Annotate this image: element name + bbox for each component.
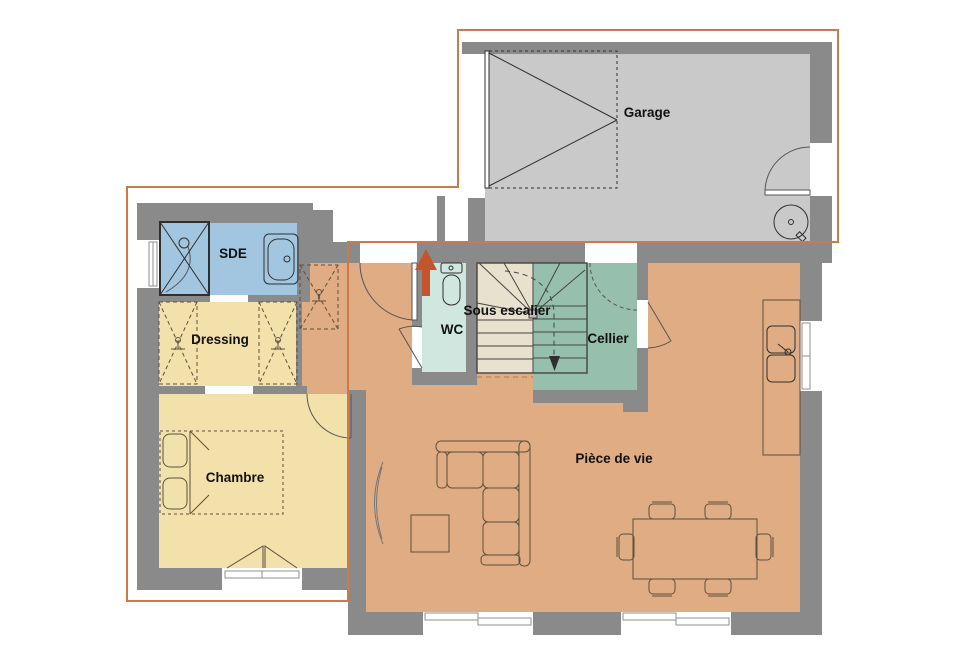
garage-cellier-opening: [585, 241, 637, 263]
floor-plan-canvas: Garage SDE Dressing Chambre WC Sous esca…: [0, 0, 960, 664]
living-window1-pane-a: [425, 613, 478, 620]
wall-garage-left-column: [468, 198, 485, 241]
garage-door-opening: [810, 143, 832, 196]
wall-wc-stair-stub: [466, 263, 477, 373]
wall-north-night-block: [137, 203, 313, 223]
living-window2-pane-b: [676, 618, 729, 625]
wall-entrance-left: [330, 242, 360, 263]
cellier-living-opening: [637, 300, 648, 348]
wall-cellier-south-notch: [623, 390, 648, 412]
garage-door-leaf: [765, 190, 810, 195]
hall-floor: [300, 263, 412, 394]
sde-dressing-opening: [210, 295, 248, 302]
sous-escalier-floor: [477, 263, 533, 373]
label-wc: WC: [441, 322, 464, 337]
cellier-floor: [533, 263, 637, 390]
wall-column-sde-east: [308, 210, 333, 263]
wall-sde-south-left: [159, 295, 210, 302]
label-sous-escalier: Sous escalier: [463, 303, 551, 318]
label-piece-de-vie: Pièce de vie: [575, 451, 653, 466]
wall-cellier-east-upper: [637, 263, 648, 300]
wall-living-south-2: [533, 612, 621, 635]
label-sde: SDE: [219, 246, 247, 261]
dressing-chambre-opening: [205, 386, 253, 394]
label-cellier: Cellier: [587, 331, 629, 346]
entrance-opening: [360, 242, 417, 263]
wall-living-south-1: [348, 612, 423, 635]
living-window1-pane-b: [478, 618, 531, 625]
label-dressing: Dressing: [191, 332, 249, 347]
wall-dressing-south-right: [253, 386, 307, 394]
garage-sectional-door-panel: [485, 51, 489, 188]
wall-dressing-south-left: [159, 386, 205, 394]
wall-living-south-3: [731, 612, 822, 635]
wall-garage-right-upper: [810, 42, 832, 143]
wall-garage-top: [462, 42, 832, 54]
entrance-door-leaf: [412, 263, 417, 320]
wall-garage-bottom-left: [468, 241, 585, 263]
wc-door-opening: [412, 327, 422, 368]
wall-right-below-window: [800, 391, 822, 612]
wall-chambre-south-right: [302, 568, 366, 590]
wall-wc-south: [412, 372, 477, 385]
shower-drain: [179, 238, 189, 248]
label-chambre: Chambre: [206, 470, 265, 485]
wall-right-above-window: [800, 250, 822, 321]
entrance-arrow-shaft: [422, 270, 430, 296]
living-window2-pane-a: [623, 613, 676, 620]
wall-left-main: [137, 288, 159, 568]
wall-porch-column: [437, 196, 445, 242]
wall-chambre-south-left: [137, 568, 222, 590]
garage-floor: [485, 54, 810, 241]
label-garage: Garage: [624, 105, 671, 120]
floor-plan: Garage SDE Dressing Chambre WC Sous esca…: [0, 0, 960, 664]
wall-sde-east: [297, 223, 310, 302]
wall-sde-south-right: [248, 295, 297, 302]
